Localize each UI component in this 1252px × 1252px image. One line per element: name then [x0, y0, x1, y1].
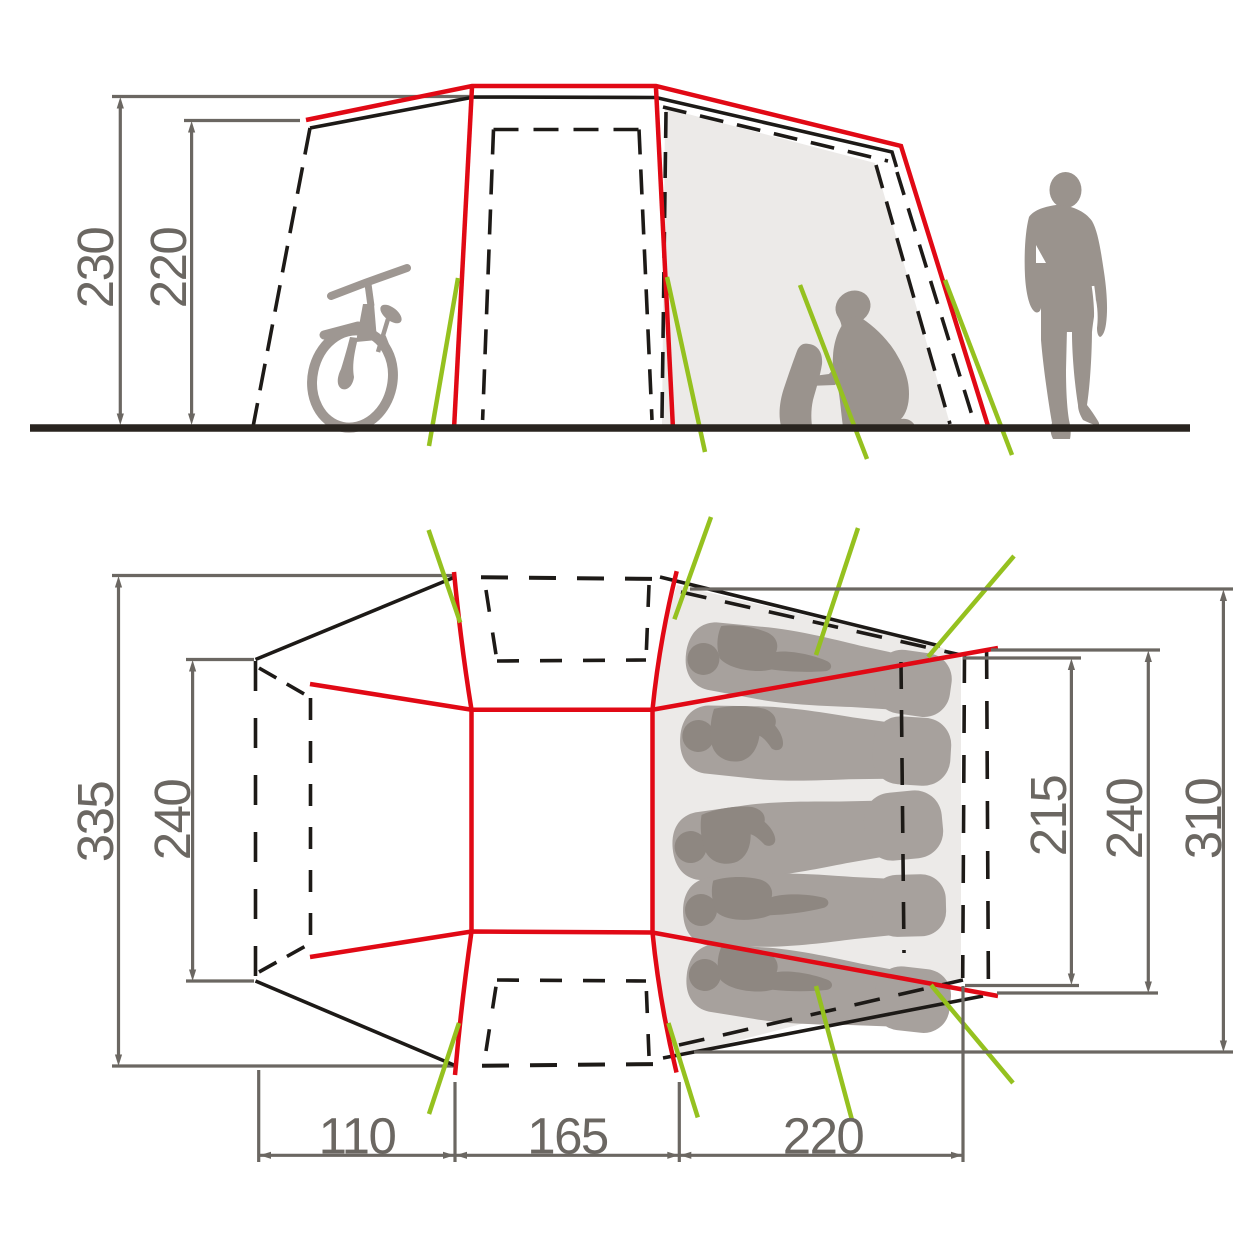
svg-text:215: 215	[1020, 776, 1077, 857]
svg-text:310: 310	[1175, 779, 1232, 860]
svg-text:220: 220	[140, 228, 197, 309]
svg-text:240: 240	[144, 780, 201, 861]
svg-text:335: 335	[67, 782, 124, 863]
svg-text:240: 240	[1096, 779, 1153, 860]
svg-text:220: 220	[783, 1108, 864, 1165]
svg-text:110: 110	[319, 1108, 396, 1165]
svg-text:230: 230	[67, 228, 124, 309]
svg-text:165: 165	[527, 1108, 608, 1165]
